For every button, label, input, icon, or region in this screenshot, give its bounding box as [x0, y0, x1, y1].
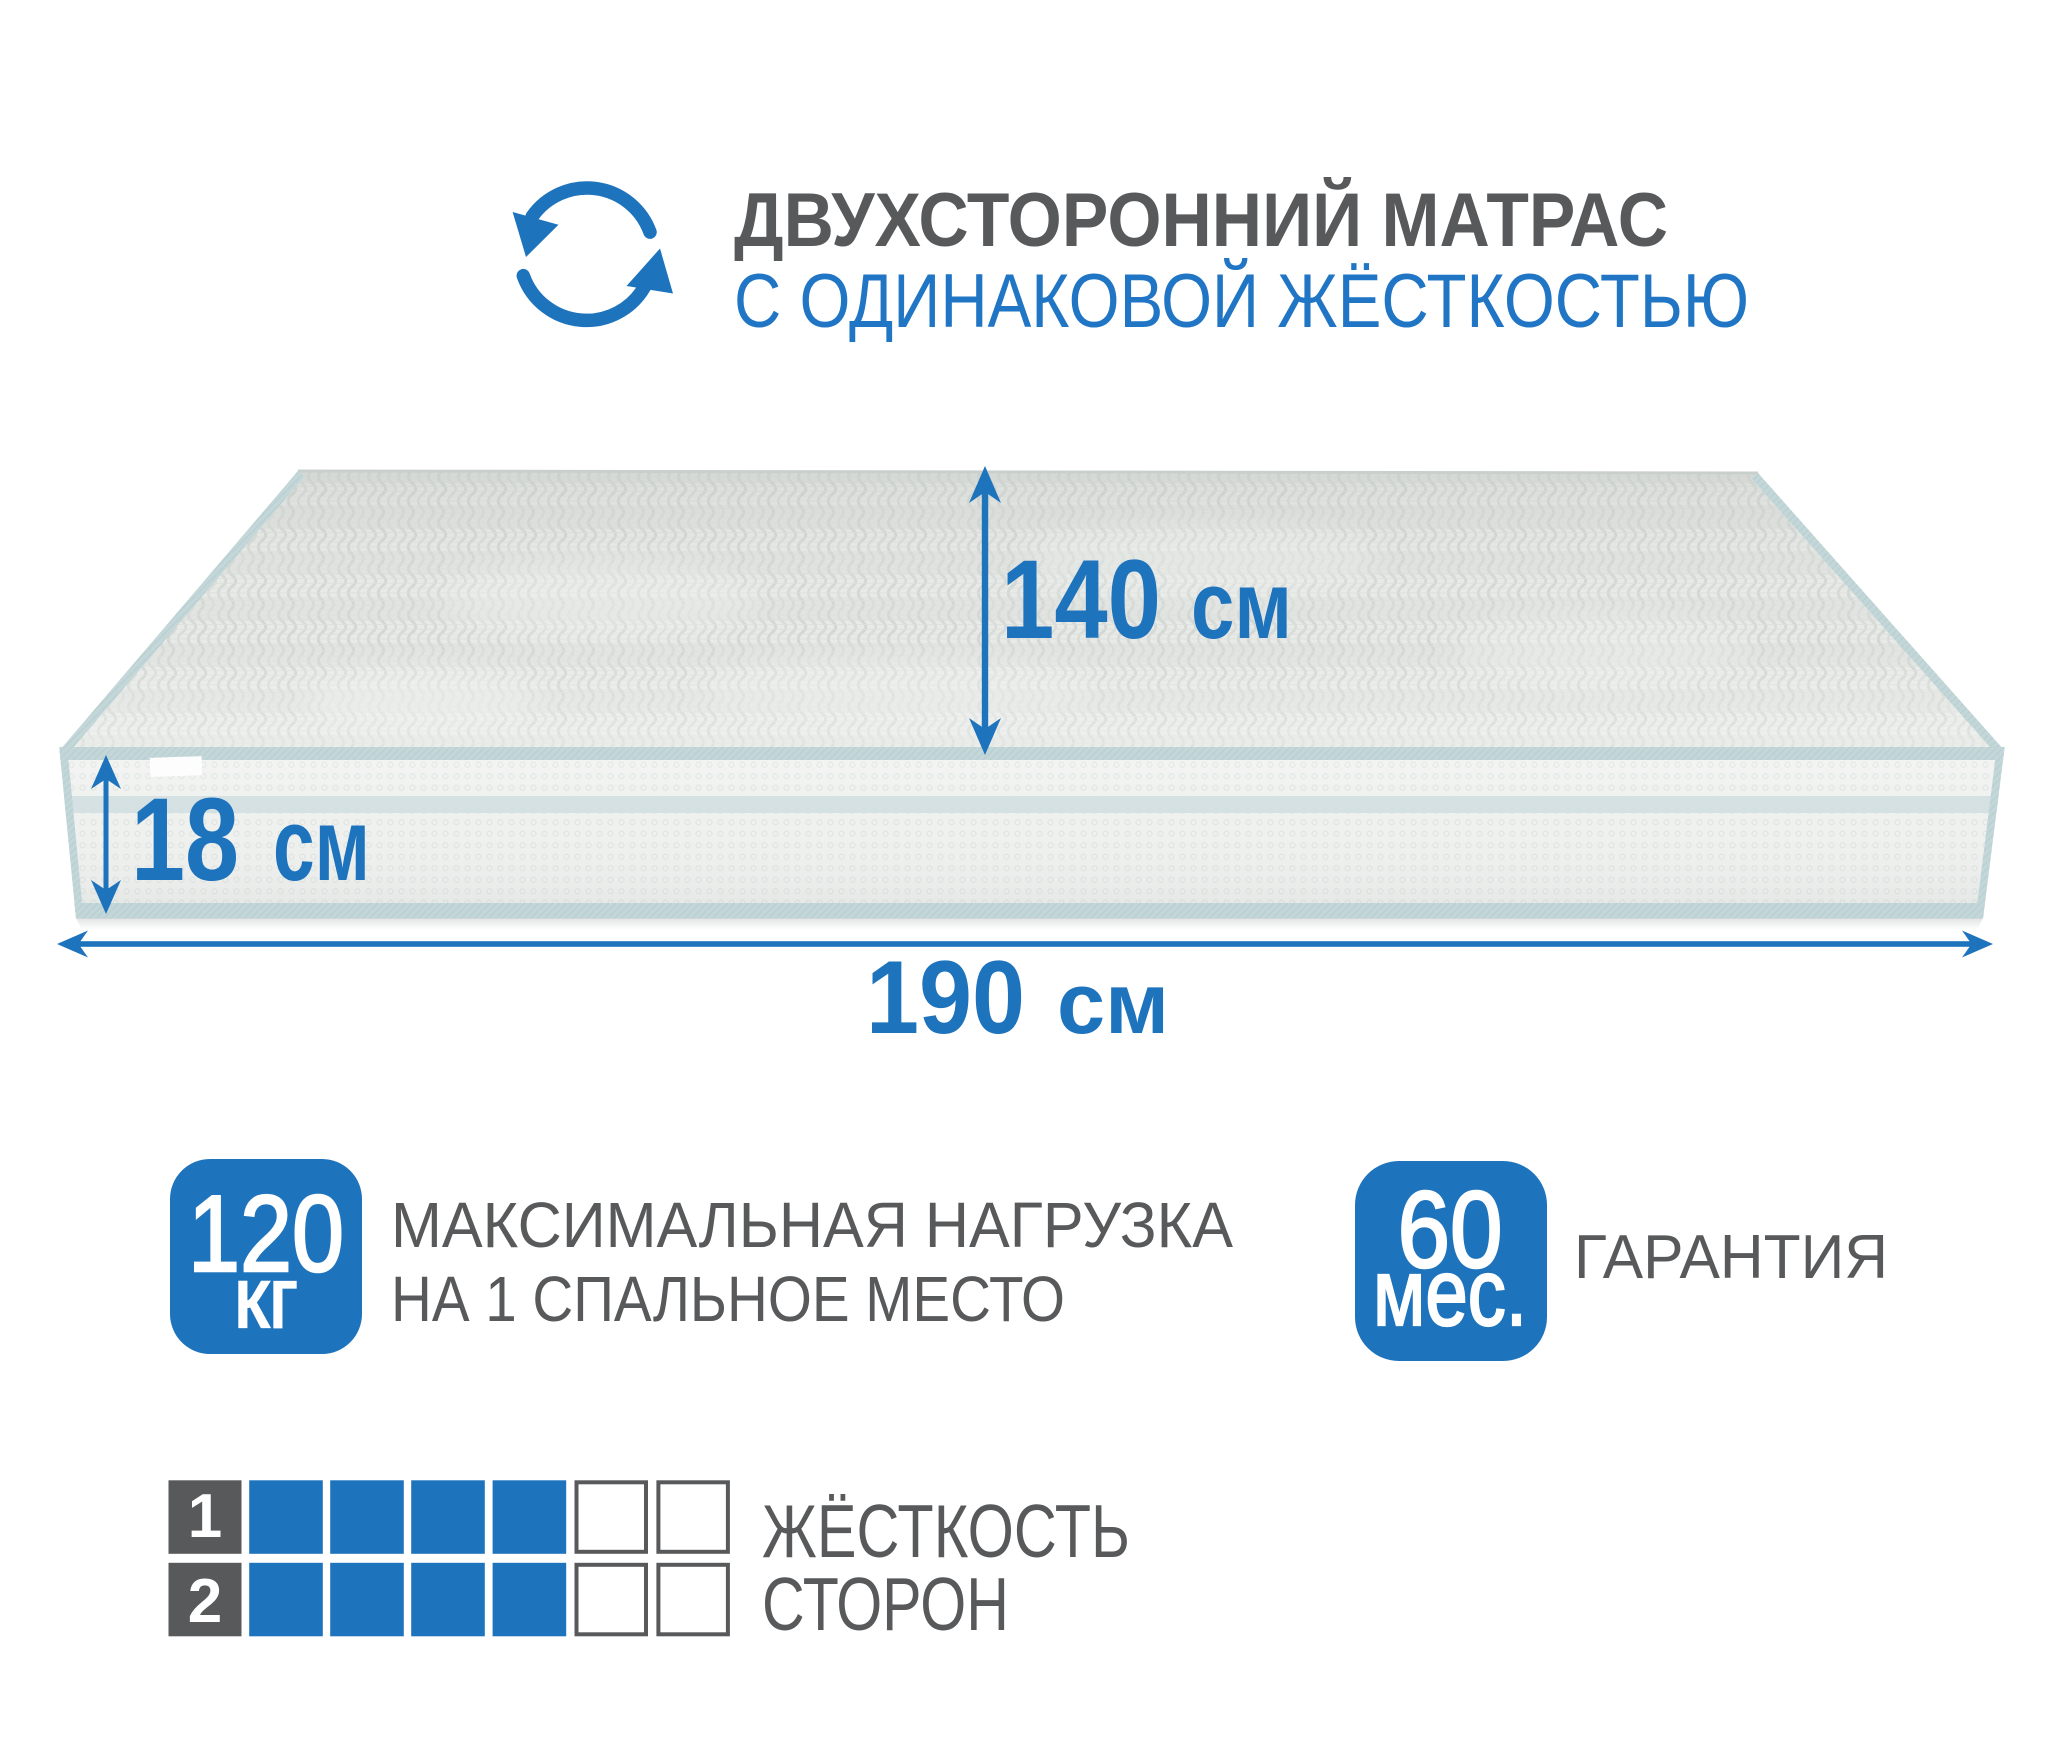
svg-text:НА 1 СПАЛЬНОЕ МЕСТО: НА 1 СПАЛЬНОЕ МЕСТО	[391, 1263, 1065, 1335]
svg-text:140: 140	[1001, 537, 1161, 662]
svg-text:мес.: мес.	[1373, 1240, 1527, 1346]
svg-text:С ОДИНАКОВОЙ ЖЁСТКОСТЬЮ: С ОДИНАКОВОЙ ЖЁСТКОСТЬЮ	[734, 258, 1749, 344]
svg-text:ДВУХСТОРОННИЙ МАТРАС: ДВУХСТОРОННИЙ МАТРАС	[734, 177, 1668, 263]
svg-text:СТОРОН: СТОРОН	[762, 1562, 1009, 1646]
svg-text:см: см	[273, 787, 370, 902]
svg-text:190: 190	[866, 940, 1025, 1056]
svg-text:2: 2	[188, 1567, 222, 1636]
svg-text:МАКСИМАЛЬНАЯ НАГРУЗКА: МАКСИМАЛЬНАЯ НАГРУЗКА	[391, 1189, 1233, 1261]
svg-text:ГАРАНТИЯ: ГАРАНТИЯ	[1574, 1223, 1888, 1292]
svg-text:см: см	[1191, 552, 1292, 659]
svg-text:см: см	[1057, 956, 1169, 1052]
svg-text:1: 1	[188, 1482, 222, 1551]
svg-text:ЖЁСТКОСТЬ: ЖЁСТКОСТЬ	[762, 1489, 1130, 1573]
svg-text:18: 18	[131, 774, 239, 906]
svg-text:кг: кг	[234, 1251, 298, 1346]
